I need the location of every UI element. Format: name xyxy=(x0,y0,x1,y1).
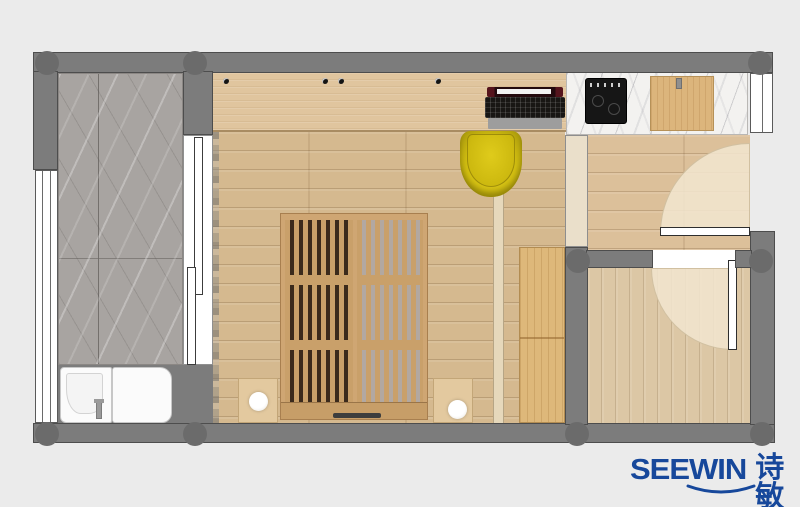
wall-bathroom-top-left xyxy=(586,250,653,268)
desk-grommet-icon xyxy=(322,78,328,84)
balcony-marble-floor xyxy=(58,73,183,365)
cooktop-knobs xyxy=(590,83,622,87)
column-icon xyxy=(750,422,774,446)
bathroom-door-leaf xyxy=(728,260,737,350)
laundry-machine-unit xyxy=(112,367,172,423)
logo-swoosh-icon xyxy=(686,484,756,496)
window-mullion xyxy=(50,171,51,422)
column-icon xyxy=(749,249,773,273)
entry-door-leaf xyxy=(660,227,750,236)
counter-wood-cabinet xyxy=(650,76,714,131)
desk-grommet-icon xyxy=(435,78,441,84)
laptop-keyboard xyxy=(485,97,565,118)
desk-grommet-icon xyxy=(223,78,229,84)
desk-grommet-icon xyxy=(338,78,344,84)
laptop-palmrest xyxy=(488,118,562,129)
wardrobe-cabinet xyxy=(519,247,565,423)
wall-left-upper xyxy=(33,71,58,170)
entry-shoe-cabinet xyxy=(565,135,588,247)
column-icon xyxy=(565,422,589,446)
brand-logo-chinese: 诗敏 xyxy=(755,454,800,507)
bed-lamp-right-icon xyxy=(448,400,467,419)
brand-logo-latin: SEEWIN xyxy=(630,455,746,484)
bathroom-door-opening xyxy=(653,250,735,268)
chair-seat xyxy=(467,134,515,187)
left-window xyxy=(35,170,58,423)
right-window xyxy=(750,73,773,133)
burner-icon xyxy=(608,103,620,115)
laptop-screen-highlight xyxy=(497,89,551,94)
bed-slats-left xyxy=(285,220,353,404)
bed-handle-icon xyxy=(333,413,381,418)
wall-bathroom-left xyxy=(565,247,588,425)
floorplan-canvas: SEEWIN 诗敏 xyxy=(0,0,800,507)
bed-lamp-left-icon xyxy=(249,392,268,411)
sliding-door-panel xyxy=(187,267,196,365)
column-icon xyxy=(183,51,207,75)
column-icon xyxy=(566,249,590,273)
faucet-icon xyxy=(96,402,102,419)
wall-balcony-divider xyxy=(183,71,213,135)
cabinet-handle-icon xyxy=(676,78,682,89)
column-icon xyxy=(183,422,207,446)
window-mullion xyxy=(762,74,763,132)
slatted-platform-bed xyxy=(280,213,428,420)
column-icon xyxy=(748,51,772,75)
induction-cooktop-icon xyxy=(585,78,627,124)
burner-icon xyxy=(592,95,604,107)
bed-slats-right xyxy=(357,220,423,404)
column-icon xyxy=(35,422,59,446)
brand-logo: SEEWIN 诗敏 xyxy=(630,454,800,507)
window-mullion xyxy=(42,171,43,422)
laundry-sink-unit xyxy=(60,367,112,423)
wall-top xyxy=(33,52,773,73)
column-icon xyxy=(35,51,59,75)
wall-bottom xyxy=(33,423,775,443)
